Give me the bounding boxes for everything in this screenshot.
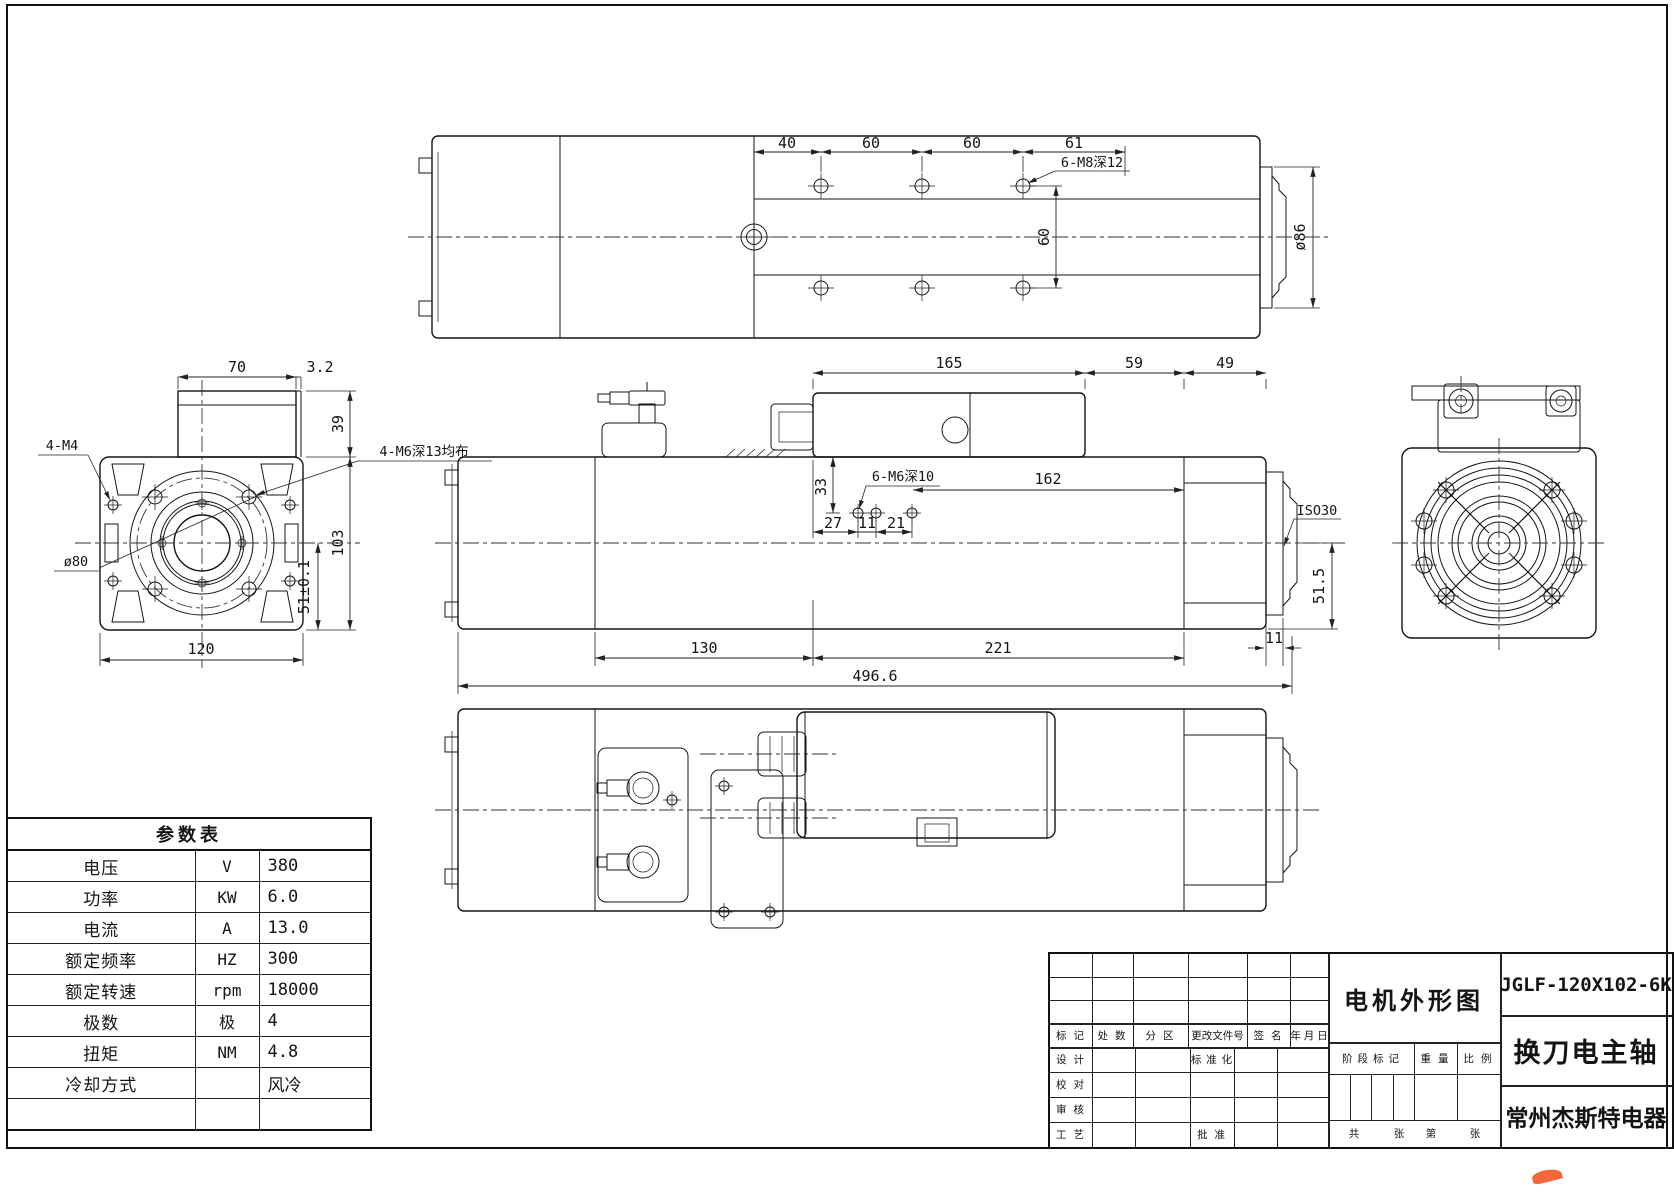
product-name: 换刀电主轴 xyxy=(1500,1015,1672,1085)
role-audit: 审 核 xyxy=(1050,1097,1092,1122)
param-value xyxy=(259,1099,371,1131)
title-block: 标 记 处 数 分 区 更改文件号 签 名 年 月 日 设 计 校 对 审 核 … xyxy=(1048,952,1674,1149)
param-unit: KW xyxy=(195,882,259,913)
param-name: 额定频率 xyxy=(7,944,195,975)
table-row: 极数极4 xyxy=(7,1006,371,1037)
drawing-title: 电机外形图 xyxy=(1328,954,1500,1042)
param-unit xyxy=(195,1099,259,1131)
param-unit: HZ xyxy=(195,944,259,975)
sheet-total-label: 共 xyxy=(1345,1120,1365,1147)
rev-col-count: 处 数 xyxy=(1092,1023,1133,1047)
table-row: 额定转速rpm18000 xyxy=(7,975,371,1006)
param-unit: A xyxy=(195,913,259,944)
role-craft: 工 艺 xyxy=(1050,1122,1092,1147)
param-value: 风冷 xyxy=(259,1068,371,1099)
param-value: 6.0 xyxy=(259,882,371,913)
rev-col-doc: 更改文件号 xyxy=(1188,1023,1247,1047)
sheet-unit-label2: 张 xyxy=(1466,1120,1486,1147)
parameter-table: 参数表 电压V380 功率KW6.0 电流A13.0 额定频率HZ300 额定转… xyxy=(6,817,372,1131)
role-approve: 批 准 xyxy=(1190,1122,1234,1147)
param-value: 13.0 xyxy=(259,913,371,944)
param-unit: NM xyxy=(195,1037,259,1068)
table-row: 冷却方式风冷 xyxy=(7,1068,371,1099)
param-value: 300 xyxy=(259,944,371,975)
param-unit: 极 xyxy=(195,1006,259,1037)
param-name: 冷却方式 xyxy=(7,1068,195,1099)
table-row xyxy=(7,1099,371,1131)
param-name: 扭矩 xyxy=(7,1037,195,1068)
scale-label: 比 例 xyxy=(1457,1042,1500,1074)
param-value: 4 xyxy=(259,1006,371,1037)
param-name: 额定转速 xyxy=(7,975,195,1006)
role-standard: 标 准 化 xyxy=(1190,1047,1234,1072)
param-name: 电压 xyxy=(7,850,195,882)
table-row: 功率KW6.0 xyxy=(7,882,371,913)
sheet-no-label: 第 xyxy=(1422,1120,1442,1147)
param-name: 极数 xyxy=(7,1006,195,1037)
rev-col-zone: 分 区 xyxy=(1133,1023,1188,1047)
company-name: 常州杰斯特电器 xyxy=(1500,1085,1672,1147)
rev-col-sign: 签 名 xyxy=(1247,1023,1290,1047)
rev-col-date: 年 月 日 xyxy=(1290,1023,1328,1047)
table-row: 额定频率HZ300 xyxy=(7,944,371,975)
role-design: 设 计 xyxy=(1050,1047,1092,1072)
param-value: 18000 xyxy=(259,975,371,1006)
stage-mark-label: 阶 段 标 记 xyxy=(1328,1042,1414,1074)
parameter-table-title: 参数表 xyxy=(7,818,371,850)
rev-col-mark: 标 记 xyxy=(1050,1023,1092,1047)
role-proof: 校 对 xyxy=(1050,1072,1092,1097)
param-value: 4.8 xyxy=(259,1037,371,1068)
drawing-page: 40 60 60 61 6-M8深12 60 ø86 xyxy=(0,0,1674,1194)
weight-label: 重 量 xyxy=(1414,1042,1457,1074)
model-number: JGLF-120X102-6K xyxy=(1500,954,1672,1015)
param-name xyxy=(7,1099,195,1131)
param-unit: V xyxy=(195,850,259,882)
table-row: 电流A13.0 xyxy=(7,913,371,944)
param-name: 电流 xyxy=(7,913,195,944)
param-name: 功率 xyxy=(7,882,195,913)
sheet-unit-label: 张 xyxy=(1390,1120,1410,1147)
table-row: 扭矩NM4.8 xyxy=(7,1037,371,1068)
table-row: 电压V380 xyxy=(7,850,371,882)
param-unit: rpm xyxy=(195,975,259,1006)
param-unit xyxy=(195,1068,259,1099)
param-value: 380 xyxy=(259,850,371,882)
